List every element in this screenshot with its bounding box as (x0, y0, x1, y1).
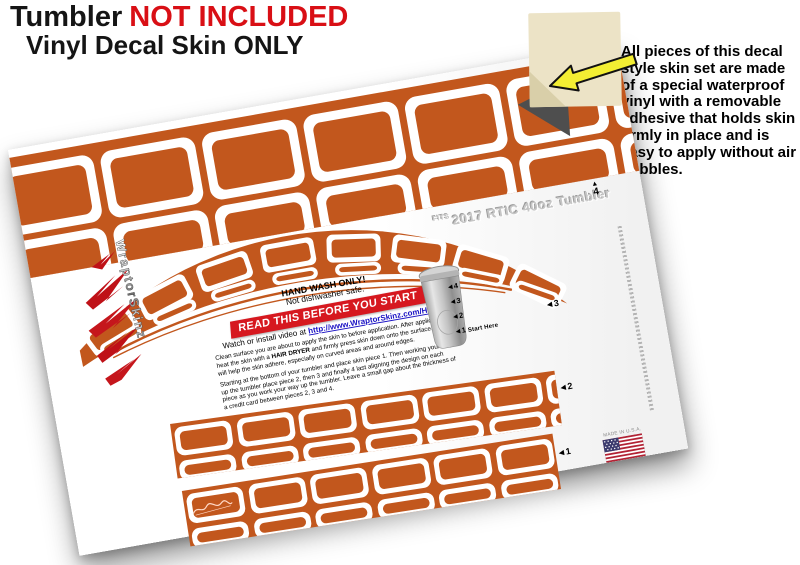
decal-tile-fill (438, 453, 488, 480)
arrow-icon (540, 44, 650, 104)
decal-tile-fill (196, 526, 244, 543)
product-image: { "header": { "title_black": "Tumbler", … (0, 0, 800, 565)
decal-tile (500, 473, 559, 501)
decal-tile-fill (308, 442, 356, 458)
decal-tile (326, 233, 381, 263)
decal-tile (438, 482, 497, 510)
decal-tile (371, 457, 432, 495)
page-title: TumblerNOT INCLUDED Vinyl Decal Skin ONL… (10, 2, 348, 60)
decal-tile-fill (493, 416, 541, 432)
decal-tile (174, 420, 234, 457)
fits-prefix: FITS (432, 213, 450, 223)
title-line1: TumblerNOT INCLUDED (10, 2, 348, 32)
legend-item-1: ◄1 Start Here (454, 321, 499, 337)
us-flag-icon (602, 433, 645, 463)
decal-tile-fill (444, 488, 492, 505)
decal-tile (309, 467, 370, 505)
title-not-included: NOT INCLUDED (129, 1, 348, 33)
decal-tile (253, 511, 312, 539)
decal-tile-fill (370, 433, 418, 449)
decal-tile (421, 385, 481, 422)
decal-tile (432, 448, 493, 486)
decal-sheet: FITS2017 RTIC 40oz Tumbler ▲ 4 ◄3 ◄2 ◄1 (8, 43, 688, 556)
decal-tile-fill (505, 478, 553, 495)
decal-tile-fill (365, 400, 414, 425)
decal-tile (99, 136, 205, 220)
piece-4-marker: ▲ 4 (586, 179, 605, 199)
legend-item-2: ◄2 (451, 306, 496, 321)
logo-text: WraptorSkinz (112, 238, 149, 340)
start-here-note: Start Here (468, 323, 499, 334)
decal-tile-fill (9, 164, 93, 227)
title-line2: Vinyl Decal Skin ONLY (10, 32, 348, 59)
decal-tile (314, 501, 373, 529)
decal-tile (302, 100, 408, 184)
decal-tile-fill (184, 459, 232, 475)
decal-tile-fill (320, 507, 368, 524)
decal-tile (178, 453, 237, 478)
decal-tile (235, 411, 295, 448)
piece-1-marker: ◄1 (556, 447, 571, 458)
decal-tile (302, 436, 361, 464)
decal-tile (376, 492, 435, 520)
title-black: Tumbler (10, 1, 122, 33)
decal-tile (9, 153, 103, 237)
decal-tile-fill (489, 382, 538, 407)
decal-tile-fill (315, 472, 365, 499)
decal-tile-fill (109, 146, 194, 209)
legend-item-3: ◄3 (449, 291, 494, 306)
decal-tile (359, 394, 419, 431)
decal-tile (297, 403, 357, 440)
made-in-usa: MADE IN U.S.A. (598, 426, 649, 468)
decal-tile (191, 520, 250, 546)
decal-tile-fill (427, 391, 476, 416)
decal-tile-fill (258, 516, 306, 533)
decal-tile (483, 377, 543, 414)
decal-tile (494, 438, 555, 476)
decal-tile-fill (555, 408, 562, 424)
decal-tile-fill (414, 92, 499, 155)
decal-tile-fill (500, 444, 550, 471)
decal-tile (247, 476, 308, 514)
decal-tile-fill (382, 497, 430, 514)
decal-tile (240, 445, 299, 473)
decal-tile-fill (241, 417, 290, 442)
decal-tile (364, 428, 423, 456)
decal-tile (200, 118, 306, 202)
decal-tile-fill (253, 482, 303, 509)
decal-tile-fill (246, 450, 294, 466)
decal-tile (488, 410, 547, 438)
decal-tile-fill (303, 408, 352, 433)
decal-tile (426, 419, 485, 447)
decal-tile-fill (211, 128, 296, 191)
decal-tile-fill (376, 463, 426, 490)
decal-tile-fill (432, 425, 480, 441)
decal-tile-fill (179, 425, 228, 450)
decal-tile (403, 82, 509, 166)
decal-tile-fill (312, 110, 397, 173)
